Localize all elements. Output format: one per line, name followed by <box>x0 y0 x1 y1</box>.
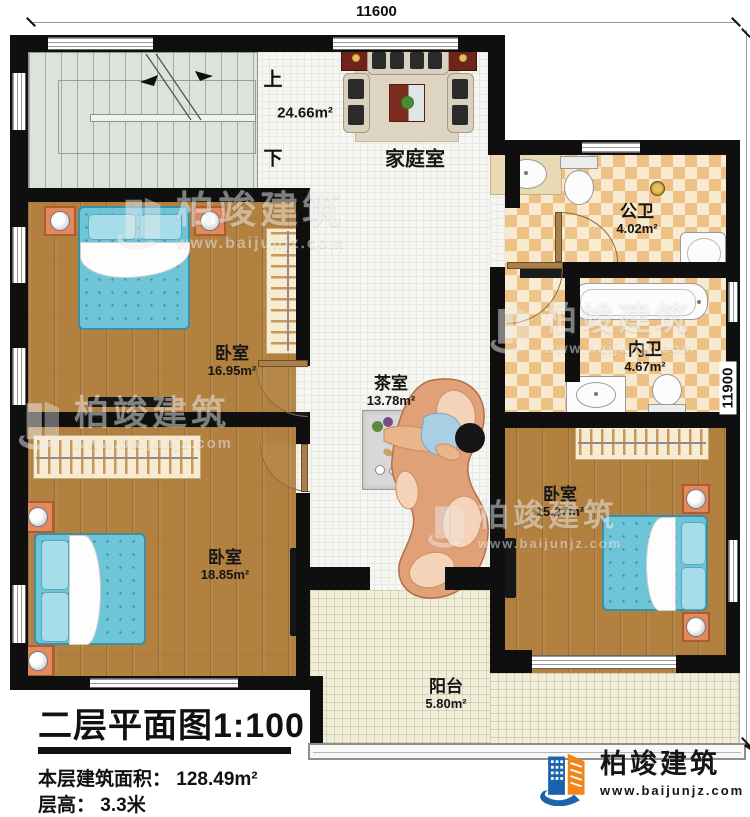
wall <box>310 676 323 743</box>
nightstand <box>682 484 710 514</box>
wall <box>296 188 310 366</box>
dimension-top-value: 11600 <box>352 3 401 20</box>
dimension-line-top <box>30 22 737 23</box>
company-url: www.baijunjz.com <box>600 783 744 798</box>
window <box>12 227 26 283</box>
window <box>48 37 153 50</box>
window <box>12 585 26 643</box>
wall <box>676 655 740 673</box>
wall <box>310 567 370 590</box>
toilet-tank <box>560 156 598 169</box>
dimension-line-right <box>746 30 747 745</box>
tv <box>505 538 516 598</box>
public-bath-label: 公卫 4.02m² <box>616 202 657 236</box>
wall <box>565 262 580 382</box>
window <box>90 678 238 688</box>
company-logo-icon <box>536 750 592 806</box>
wall <box>490 267 505 590</box>
company-name: 柏竣建筑 <box>600 750 744 780</box>
door-leaf <box>301 444 308 492</box>
title-underline <box>38 747 291 754</box>
dimension-right-value: 11900 <box>720 362 737 415</box>
wall <box>488 35 505 155</box>
terrace-floor <box>490 673 740 745</box>
wall <box>296 493 310 676</box>
double-bed <box>602 515 708 611</box>
door-leaf <box>507 262 563 269</box>
double-bed <box>78 206 190 330</box>
nightstand <box>682 612 710 642</box>
wall <box>10 412 310 427</box>
company-logo: 柏竣建筑 www.baijunjz.com <box>536 750 744 806</box>
toilet <box>564 170 594 205</box>
tv <box>88 397 173 407</box>
stairs-down-label: 下 <box>263 144 282 171</box>
balcony-floor <box>310 590 490 745</box>
nightstand <box>44 206 76 236</box>
coffee-table <box>389 84 425 122</box>
sofa-right <box>447 73 474 133</box>
tea-room-label: 茶室 13.78m² <box>367 374 415 408</box>
bedroom2-label: 卧室 18.85m² <box>201 548 249 582</box>
ensuite-bath-label: 内卫 4.67m² <box>624 340 665 374</box>
wardrobe <box>575 424 709 460</box>
toilet <box>652 374 682 406</box>
sliding-door <box>532 655 676 669</box>
plant <box>401 96 414 109</box>
window <box>333 37 458 50</box>
sofa-left <box>343 73 370 133</box>
wall <box>490 650 532 673</box>
wall <box>505 412 740 428</box>
floor-height-line: 层高： 3.3米 <box>38 790 146 817</box>
double-bed <box>34 533 146 645</box>
door-leaf <box>555 212 562 262</box>
pendant-light <box>650 181 665 196</box>
bedroom1-label: 卧室 16.95m² <box>208 344 256 378</box>
stair-direction-marks <box>28 52 258 189</box>
wall <box>296 418 310 444</box>
nightstand <box>194 206 226 236</box>
bathtub <box>572 283 708 320</box>
vanity-counter <box>490 151 562 195</box>
stairs-up-label: 上 <box>263 65 282 92</box>
wardrobe <box>33 435 201 479</box>
wall <box>10 188 310 202</box>
window <box>728 282 738 322</box>
floor-area-line: 本层建筑面积： 128.49m² <box>38 764 258 791</box>
plan-title: 二层平面图1:100 <box>38 698 305 747</box>
window <box>12 73 26 130</box>
floor-plan: 上 下 24.66m² 家庭室 公卫 4.02m² 内卫 4.67m² 卧室 1… <box>0 0 750 817</box>
wall <box>505 155 520 208</box>
door-leaf <box>258 360 308 367</box>
window <box>582 142 640 153</box>
family-room-area: 24.66m² <box>277 104 333 121</box>
balcony-label: 阳台 5.80m² <box>425 677 466 711</box>
bedroom3-label: 卧室 15.27m² <box>536 485 584 519</box>
family-room-label: 家庭室 <box>385 149 445 172</box>
window <box>728 540 738 602</box>
window <box>12 348 26 405</box>
